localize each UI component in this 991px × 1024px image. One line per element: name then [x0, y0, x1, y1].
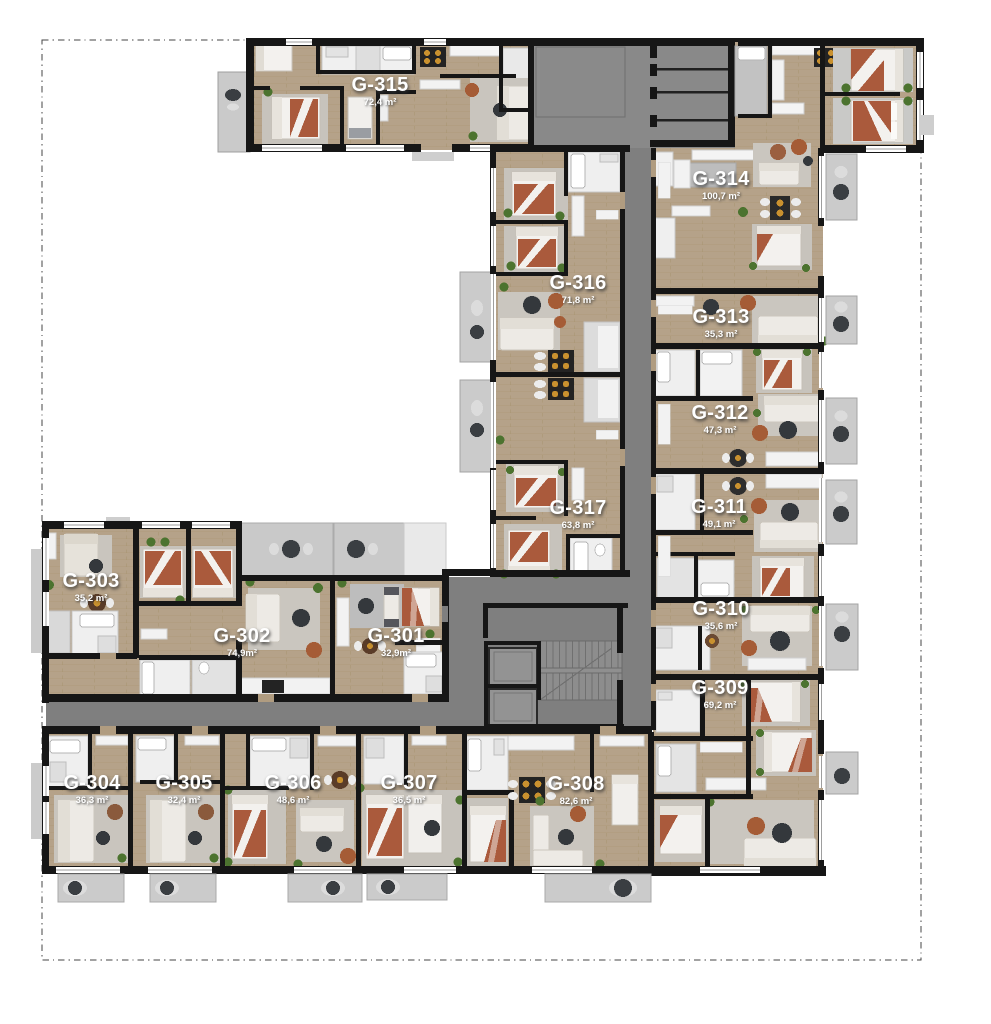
svg-text:32,9m²: 32,9m²	[381, 648, 411, 659]
svg-text:G-312: G-312	[691, 402, 748, 424]
svg-text:G-313: G-313	[692, 306, 749, 328]
svg-text:G-309: G-309	[691, 677, 748, 699]
svg-text:71,8 m²: 71,8 m²	[562, 295, 595, 306]
svg-text:G-302: G-302	[213, 625, 270, 647]
svg-text:G-301: G-301	[367, 625, 424, 647]
svg-text:36,5 m²: 36,5 m²	[393, 795, 426, 806]
svg-text:G-316: G-316	[549, 272, 606, 294]
svg-text:82,6 m²: 82,6 m²	[560, 796, 593, 807]
svg-text:G-303: G-303	[62, 570, 119, 592]
svg-text:35,6 m²: 35,6 m²	[705, 621, 738, 632]
svg-text:G-305: G-305	[155, 772, 212, 794]
svg-text:100,7 m²: 100,7 m²	[702, 191, 740, 202]
svg-text:72,4 m²: 72,4 m²	[364, 97, 397, 108]
svg-text:G-308: G-308	[547, 773, 604, 795]
svg-text:G-306: G-306	[264, 772, 321, 794]
svg-text:G-317: G-317	[549, 497, 606, 519]
svg-text:48,6 m²: 48,6 m²	[277, 795, 310, 806]
svg-text:32,4 m²: 32,4 m²	[168, 795, 201, 806]
svg-text:G-304: G-304	[63, 772, 121, 794]
svg-text:49,1 m²: 49,1 m²	[703, 519, 736, 530]
svg-text:36,3 m²: 36,3 m²	[76, 795, 109, 806]
svg-text:G-311: G-311	[691, 496, 747, 518]
svg-text:G-314: G-314	[692, 168, 750, 190]
svg-text:G-307: G-307	[380, 772, 437, 794]
svg-text:G-315: G-315	[351, 74, 408, 96]
svg-text:74,9m²: 74,9m²	[227, 648, 257, 659]
svg-text:35,2 m²: 35,2 m²	[75, 593, 108, 604]
svg-text:63,8 m²: 63,8 m²	[562, 520, 595, 531]
svg-text:35,3 m²: 35,3 m²	[705, 329, 738, 340]
svg-text:69,2 m²: 69,2 m²	[704, 700, 737, 711]
svg-text:G-310: G-310	[692, 598, 749, 620]
svg-text:47,3 m²: 47,3 m²	[704, 425, 737, 436]
